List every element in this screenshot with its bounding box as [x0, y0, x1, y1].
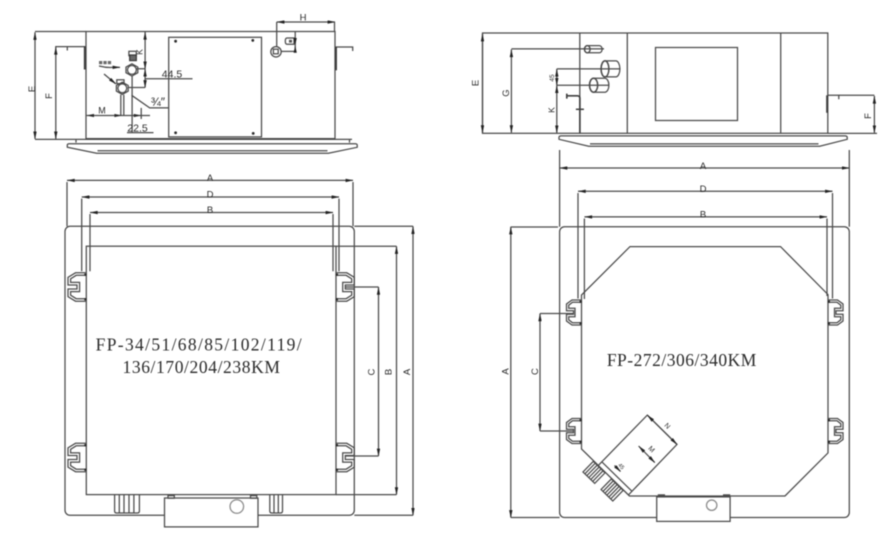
svg-text:G: G: [501, 89, 512, 96]
svg-text:136/170/204/238KM: 136/170/204/238KM: [123, 357, 281, 377]
svg-text:E: E: [27, 86, 38, 92]
svg-text:A: A: [207, 173, 214, 184]
svg-text:A: A: [700, 161, 707, 172]
svg-text:F: F: [44, 93, 55, 99]
svg-text:C: C: [530, 368, 541, 375]
svg-text:K: K: [547, 107, 557, 113]
svg-text:C: C: [367, 368, 378, 375]
svg-text:FP-34/51/68/85/102/119/: FP-34/51/68/85/102/119/: [96, 335, 303, 355]
svg-text:D: D: [700, 184, 707, 195]
svg-text:K: K: [135, 49, 145, 55]
svg-text:B: B: [207, 205, 213, 216]
svg-text:E: E: [471, 80, 482, 86]
svg-text:A: A: [501, 368, 512, 375]
svg-text:B: B: [384, 369, 395, 375]
svg-text:M: M: [98, 106, 106, 116]
svg-text:H: H: [300, 12, 307, 23]
svg-text:44.5: 44.5: [162, 69, 183, 81]
svg-text:¾″: ¾″: [151, 95, 166, 109]
svg-text:D: D: [207, 190, 214, 201]
svg-text:22.5: 22.5: [127, 123, 148, 135]
svg-text:N: N: [663, 422, 672, 431]
svg-text:FP-272/306/340KM: FP-272/306/340KM: [607, 350, 757, 370]
svg-text:F: F: [863, 113, 874, 119]
svg-text:45: 45: [549, 74, 556, 82]
svg-text:B: B: [700, 210, 706, 221]
svg-text:A: A: [402, 368, 413, 375]
